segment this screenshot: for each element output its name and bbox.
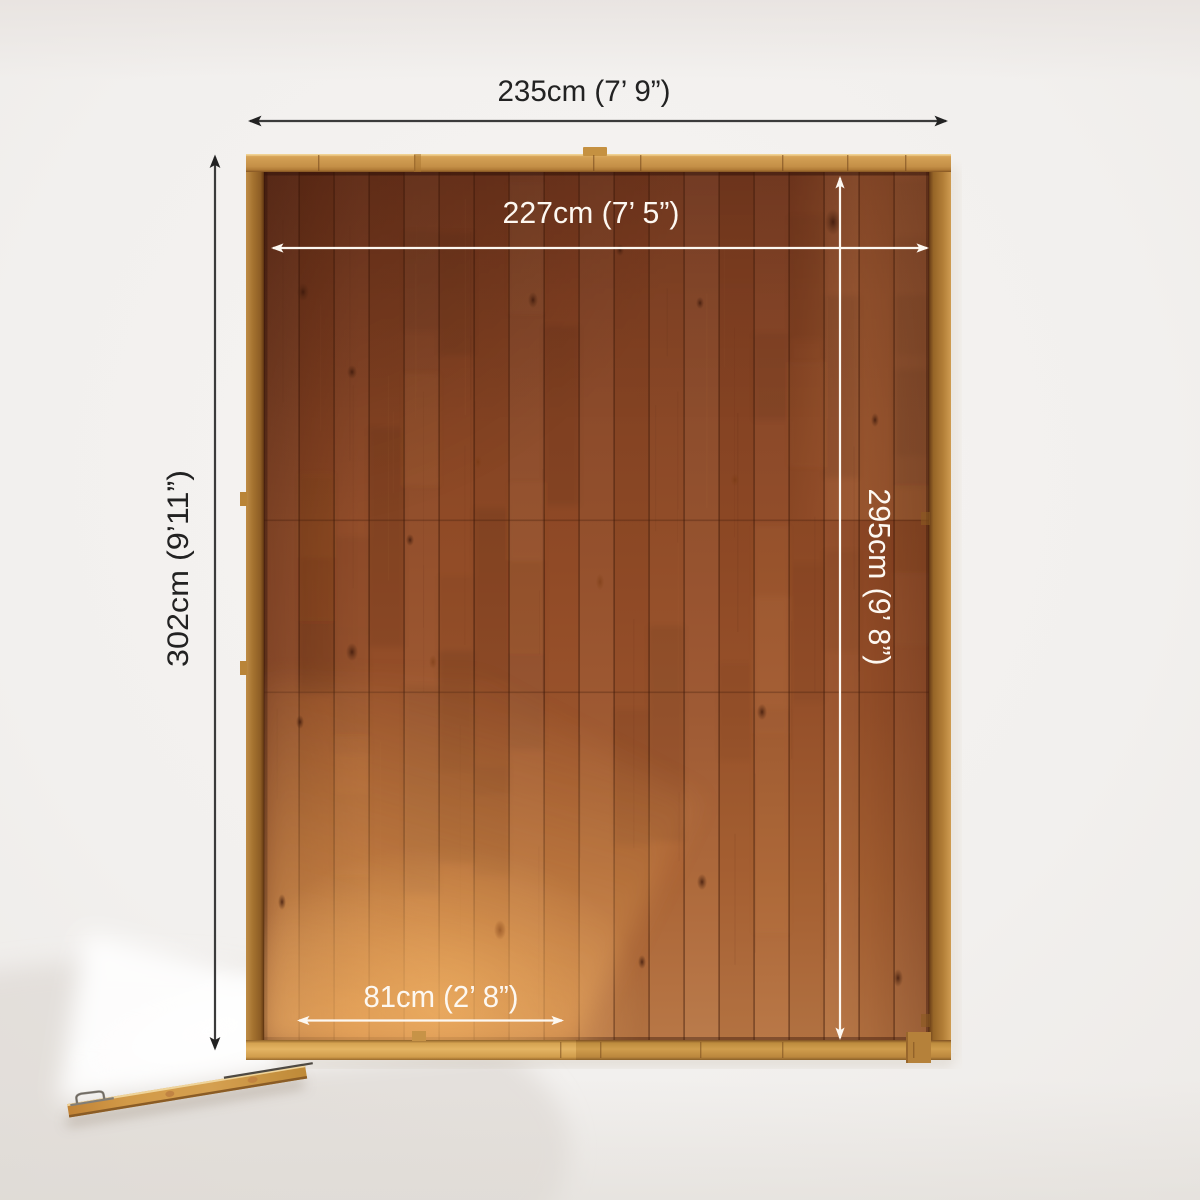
- svg-text:302cm (9’11”): 302cm (9’11”): [162, 470, 195, 667]
- svg-text:227cm (7’ 5”): 227cm (7’ 5”): [503, 196, 680, 230]
- svg-text:81cm (2’ 8”): 81cm (2’ 8”): [364, 980, 519, 1014]
- svg-text:295cm (9’ 8”): 295cm (9’ 8”): [862, 489, 896, 666]
- svg-text:235cm (7’ 9”): 235cm (7’ 9”): [498, 75, 671, 108]
